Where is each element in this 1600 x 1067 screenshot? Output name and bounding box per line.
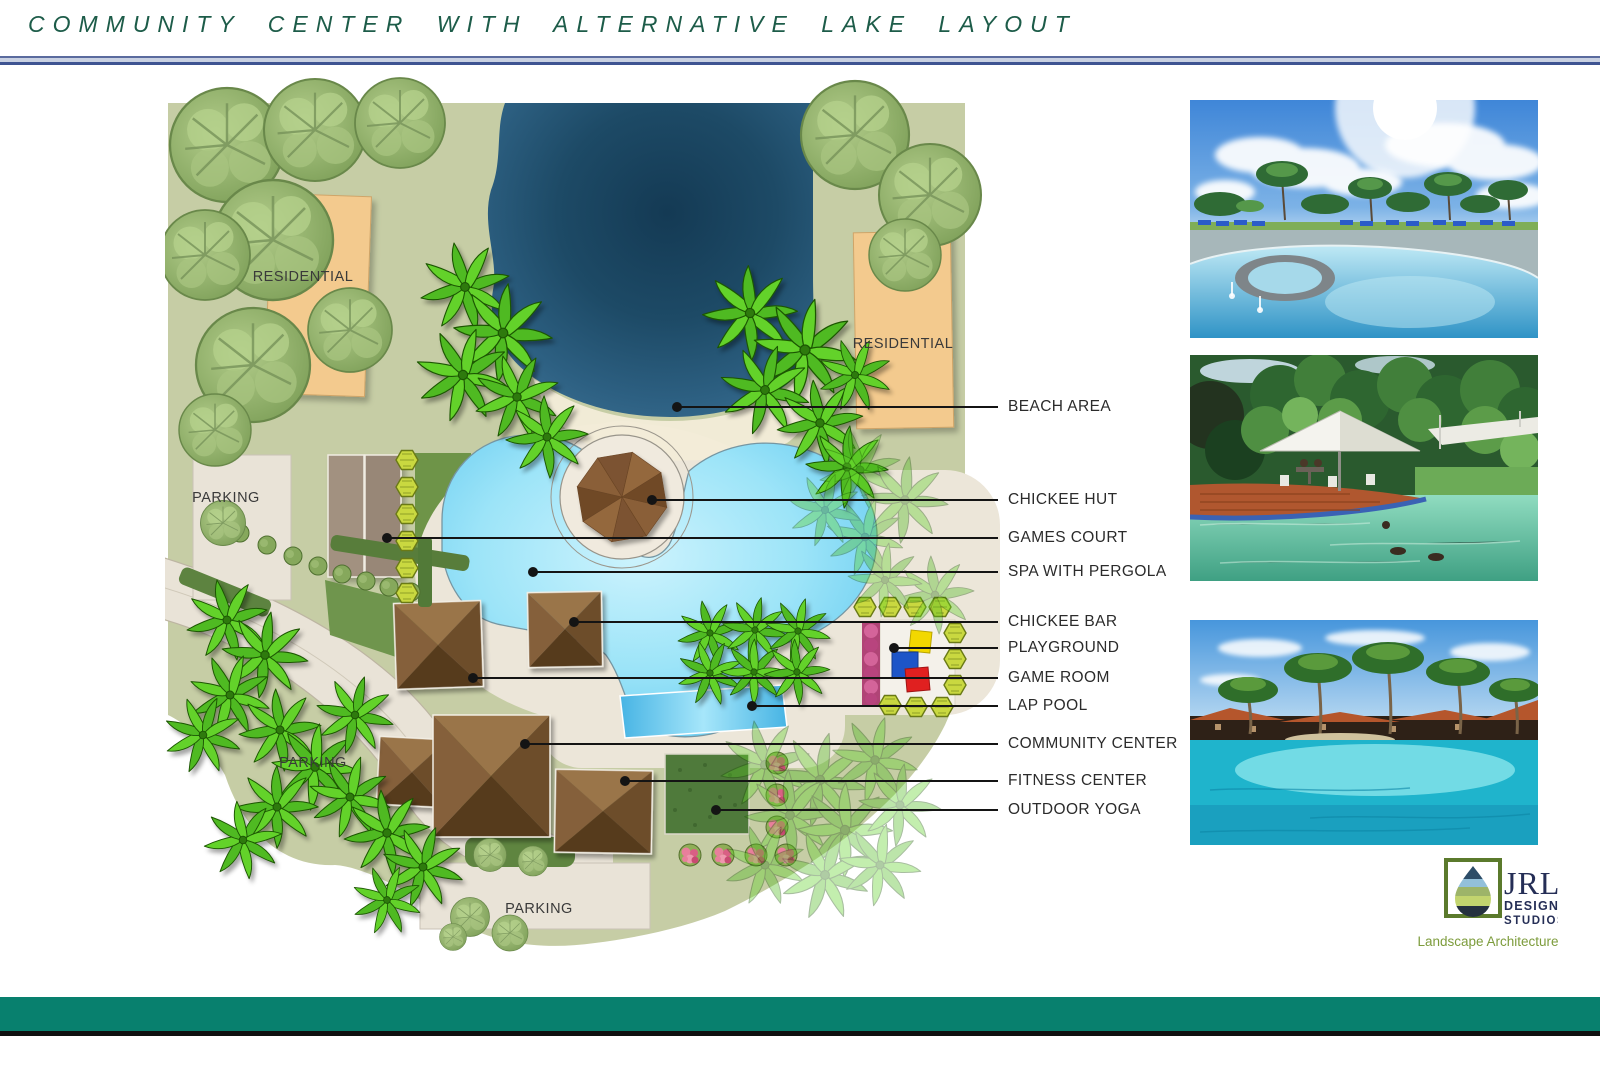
footer-bar [0, 997, 1600, 1031]
logo-line2: STUDIOS [1504, 915, 1558, 927]
logo-leaf-mark [1446, 860, 1500, 918]
reference-photo-pool-spa [1190, 100, 1538, 338]
presentation-board: COMMUNITY CENTER WITH ALTERNATIVE LAKE L… [0, 0, 1600, 1067]
legend-label-playground: PLAYGROUND [1008, 639, 1119, 657]
residential-left-label: RESIDENTIAL [238, 269, 368, 285]
residential-right-label: RESIDENTIAL [838, 336, 968, 352]
title-divider [0, 56, 1600, 65]
chickee-bar-building [527, 591, 602, 667]
logo-name: JRL [1504, 865, 1558, 901]
legend-label-lap-pool: LAP POOL [1008, 697, 1088, 715]
legend-label-beach-area: BEACH AREA [1008, 398, 1111, 416]
legend-label-fitness-center: FITNESS CENTER [1008, 772, 1147, 790]
logo-line1: DESIGN [1504, 899, 1558, 913]
legend-label-outdoor-yoga: OUTDOOR YOGA [1008, 801, 1141, 819]
outdoor-yoga-lawn [665, 754, 749, 834]
legend-label-chickee-hut: CHICKEE HUT [1008, 491, 1117, 509]
playground [862, 620, 955, 707]
logo-tagline: Landscape Architecture [1418, 934, 1558, 949]
legend-label-spa-with-pergola: SPA WITH PERGOLA [1008, 563, 1167, 581]
legend-label-games-court: GAMES COURT [1008, 529, 1128, 547]
parking-mid-label: PARKING [253, 755, 373, 771]
community-center-building [433, 715, 550, 837]
parking-top-label: PARKING [166, 490, 286, 506]
jrl-design-studios-logo: JRL DESIGN STUDIOS Landscape Architectur… [1418, 858, 1558, 954]
site-plan-illustration [165, 75, 1050, 960]
legend-label-game-room: GAME ROOM [1008, 669, 1110, 687]
reference-photo-lagoon-pool [1190, 620, 1538, 845]
legend-label-chickee-bar: CHICKEE BAR [1008, 613, 1117, 631]
page-title: COMMUNITY CENTER WITH ALTERNATIVE LAKE L… [28, 11, 1077, 38]
reference-photo-pool-canopy [1190, 355, 1538, 581]
parking-bottom-label: PARKING [479, 901, 599, 917]
legend-label-community-center: COMMUNITY CENTER [1008, 735, 1178, 753]
footer-line [0, 1031, 1600, 1036]
